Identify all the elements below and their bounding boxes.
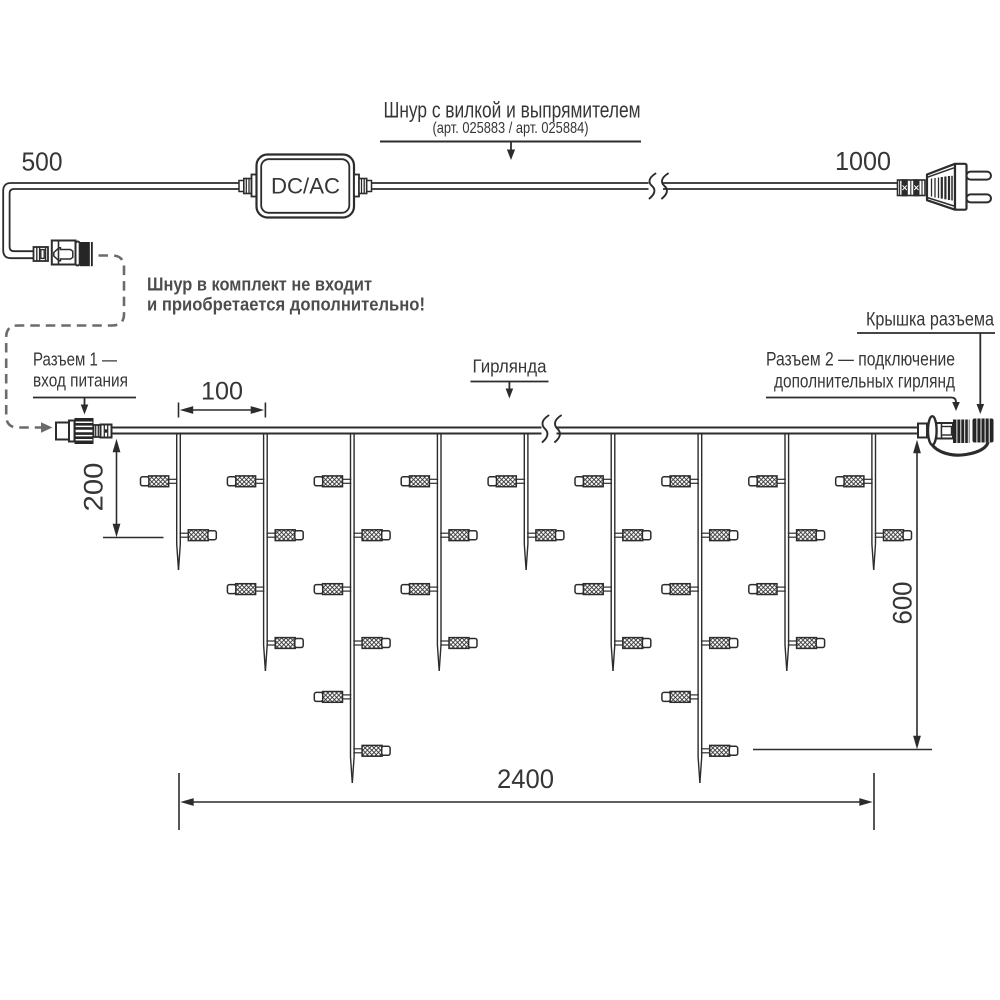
svg-text:Крышка разъема: Крышка разъема: [866, 310, 994, 331]
svg-text:200: 200: [79, 463, 109, 512]
svg-text:500: 500: [22, 149, 63, 177]
svg-text:100: 100: [201, 378, 243, 406]
svg-text:Гирлянда: Гирлянда: [473, 356, 548, 377]
svg-text:Шнур с вилкой и выпрямителем: Шнур с вилкой и выпрямителем: [384, 98, 641, 123]
svg-text:Разъем 1 —: Разъем 1 —: [33, 349, 117, 370]
svg-text:и приобретается дополнительно!: и приобретается дополнительно!: [147, 295, 425, 315]
svg-text:(арт. 025883 / арт. 025884): (арт. 025883 / арт. 025884): [433, 120, 589, 137]
svg-text:2400: 2400: [497, 764, 554, 794]
svg-text:1000: 1000: [835, 148, 891, 176]
svg-text:Разъем 2 — подключение: Разъем 2 — подключение: [766, 350, 955, 371]
svg-text:дополнительных гирлянд: дополнительных гирлянд: [774, 372, 955, 393]
svg-text:Шнур в комплект не входит: Шнур в комплект не входит: [147, 275, 372, 295]
svg-text:DC/AC: DC/AC: [271, 174, 340, 199]
svg-text:600: 600: [888, 582, 918, 625]
svg-text:вход питания: вход питания: [33, 370, 128, 391]
